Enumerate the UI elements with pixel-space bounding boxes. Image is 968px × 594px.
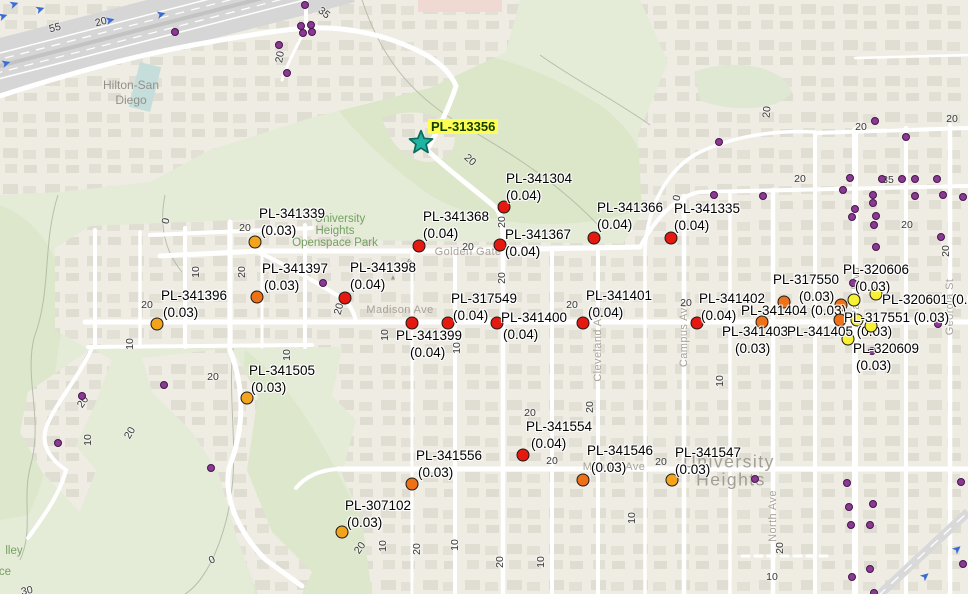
- monitoring-point-label-pl-341554: PL-341554(0.04): [526, 419, 592, 452]
- label-value: (0.04): [350, 277, 416, 294]
- traffic-direction-icon: ➤: [155, 7, 168, 21]
- monitoring-point-label-pl-341304: PL-341304(0.04): [506, 171, 572, 204]
- contour-label: 20: [940, 245, 952, 257]
- monitoring-point-dot-pl-341398[interactable]: [339, 292, 352, 305]
- monitoring-point-label-pl-341366: PL-341366(0.04): [597, 200, 663, 233]
- label-value: (0.04): [674, 218, 740, 235]
- well-point[interactable]: [847, 521, 855, 529]
- well-point[interactable]: [871, 117, 879, 125]
- well-point[interactable]: [902, 133, 910, 141]
- traffic-direction-icon: ➤: [7, 0, 20, 11]
- place-label: ce: [0, 566, 11, 578]
- contour-label: 20: [411, 543, 423, 555]
- contour-label: 10: [124, 338, 136, 350]
- monitoring-point-label-pl-341404: PL-341404 (0.03): [741, 303, 846, 320]
- contour-label: 20: [774, 542, 786, 554]
- contour-label: 20: [273, 50, 287, 64]
- label-value: (0.03): [591, 460, 653, 477]
- contour-label: 10: [190, 266, 202, 278]
- contour-label: 35: [316, 5, 333, 22]
- monitoring-point-label-pl-341403: PL-341403(0.03): [722, 324, 788, 357]
- street-label: Madison Ave: [366, 304, 433, 316]
- contour-label: 20: [239, 222, 251, 234]
- label-value: (0.04): [410, 345, 462, 362]
- contour-label: 10: [377, 540, 389, 552]
- well-point[interactable]: [851, 205, 859, 213]
- label-value: (0.03): [418, 465, 482, 482]
- monitoring-point-label-pl-317550: PL-317550(0.03): [773, 272, 839, 305]
- label-text: PL-320601 (0.03): [882, 292, 968, 309]
- label-id: PL-341304: [506, 171, 572, 188]
- well-point[interactable]: [878, 175, 886, 183]
- label-value: (0.04): [597, 217, 663, 234]
- label-value: (0.03): [264, 278, 328, 295]
- well-point[interactable]: [846, 174, 854, 182]
- label-value: (0.03): [675, 462, 741, 479]
- label-id: PL-317549: [451, 291, 517, 308]
- label-text: PL-341404 (0.03): [741, 303, 846, 320]
- monitoring-point-label-pl-341505: PL-341505(0.03): [249, 363, 315, 396]
- well-point[interactable]: [898, 175, 906, 183]
- label-value: (0.04): [531, 436, 592, 453]
- well-point[interactable]: [869, 500, 877, 508]
- label-id: PL-341554: [526, 419, 592, 436]
- well-point[interactable]: [959, 193, 967, 201]
- label-value: (0.04): [505, 244, 571, 261]
- label-id: PL-341335: [674, 201, 740, 218]
- well-point[interactable]: [171, 28, 179, 36]
- well-point[interactable]: [872, 212, 880, 220]
- contour-label: 0: [207, 553, 217, 566]
- label-id: PL-341366: [597, 200, 663, 217]
- contour-label: 20: [462, 152, 479, 169]
- contour-label: 20: [122, 425, 138, 441]
- monitoring-point-label-pl-320609: PL-320609(0.03): [853, 341, 919, 374]
- well-point[interactable]: [207, 464, 215, 472]
- well-point[interactable]: [870, 589, 878, 594]
- well-point[interactable]: [275, 41, 283, 49]
- contour-label: 10: [281, 349, 293, 361]
- monitoring-point-label-pl-341335: PL-341335(0.04): [674, 201, 740, 234]
- label-text: PL-317551 (0.03): [844, 310, 949, 327]
- label-value: (0.03): [163, 305, 227, 322]
- label-value: (0.03): [347, 515, 411, 532]
- well-point[interactable]: [870, 221, 878, 229]
- well-point[interactable]: [933, 175, 941, 183]
- label-id: PL-341403: [722, 324, 788, 341]
- site-star-label: PL-313356: [428, 119, 498, 134]
- contour-label: 20: [236, 266, 248, 278]
- well-point[interactable]: [78, 392, 86, 400]
- well-point[interactable]: [715, 138, 723, 146]
- monitoring-point-label-pl-341399: PL-341399(0.04): [396, 328, 462, 361]
- label-id: PL-341547: [675, 445, 741, 462]
- contour-label: 10: [82, 434, 94, 446]
- label-id: PL-320606: [843, 262, 909, 279]
- traffic-direction-icon: ➤: [104, 13, 117, 27]
- monitoring-point-dot-pl-341366[interactable]: [588, 232, 601, 245]
- contour-label: 20: [524, 407, 536, 419]
- street-label: North Ave: [767, 490, 779, 542]
- map-canvas[interactable]: Madison AveGolden Gate DrMonroe AveCleve…: [0, 0, 968, 594]
- well-point[interactable]: [866, 565, 874, 573]
- label-id: PL-341505: [249, 363, 315, 380]
- label-id: PL-341397: [262, 261, 328, 278]
- well-point[interactable]: [866, 521, 874, 529]
- monitoring-point-label-pl-341400: PL-341400(0.04): [501, 310, 567, 343]
- contour-label: 55: [48, 21, 62, 35]
- place-label: Hilton-San: [103, 78, 159, 92]
- contour-label: 20: [655, 456, 667, 468]
- contour-label: 30: [20, 584, 34, 594]
- label-id: PL-341367: [505, 227, 571, 244]
- well-point[interactable]: [759, 192, 767, 200]
- well-point[interactable]: [848, 573, 856, 581]
- contour-label: 20: [496, 272, 508, 284]
- monitoring-point-dot-pl-320601[interactable]: [848, 294, 861, 307]
- contour-label: 10: [449, 539, 461, 551]
- well-point[interactable]: [848, 213, 856, 221]
- well-point[interactable]: [839, 186, 847, 194]
- monitoring-point-label-pl-341367: PL-341367(0.04): [505, 227, 571, 260]
- contour-label: 0: [160, 217, 173, 225]
- label-id: PL-341396: [161, 288, 227, 305]
- well-point[interactable]: [911, 175, 919, 183]
- label-value: (0.03): [735, 341, 788, 358]
- label-value: (0.03): [261, 223, 325, 240]
- label-value: (0.03): [251, 380, 315, 397]
- monitoring-point-label-pl-341396: PL-341396(0.03): [161, 288, 227, 321]
- label-id: PL-341556: [416, 448, 482, 465]
- label-id: PL-307102: [345, 498, 411, 515]
- contour-label: 20: [207, 371, 219, 383]
- contour-label: 20: [494, 556, 506, 568]
- label-id: PL-341400: [501, 310, 567, 327]
- contour-label: 10: [379, 329, 391, 341]
- contour-label: 20: [946, 113, 958, 125]
- contour-label: 20: [794, 173, 806, 185]
- label-id: PL-341546: [587, 443, 653, 460]
- well-point[interactable]: [160, 381, 168, 389]
- well-point[interactable]: [869, 199, 877, 207]
- label-id: PL-341399: [396, 328, 462, 345]
- place-label: lley: [5, 545, 22, 557]
- label-id: PL-341398: [350, 260, 416, 277]
- contour-label: 10: [535, 556, 547, 568]
- monitoring-point-label-pl-341398: PL-341398(0.04): [350, 260, 416, 293]
- contour-label: 20: [352, 540, 369, 556]
- well-point[interactable]: [843, 479, 851, 487]
- traffic-direction-icon: ➤: [0, 56, 12, 70]
- contour-label: 20: [584, 401, 596, 413]
- well-point[interactable]: [845, 503, 853, 511]
- monitoring-point-label-pl-320606: PL-320606(0.03): [843, 262, 909, 295]
- label-id: PL-320609: [853, 341, 919, 358]
- monitoring-point-label-pl-341339: PL-341339(0.03): [259, 206, 325, 239]
- well-point[interactable]: [283, 69, 291, 77]
- traffic-direction-icon: ➤: [33, 2, 46, 17]
- contour-label: 20: [546, 455, 558, 467]
- monitoring-point-label-pl-307102: PL-307102(0.03): [345, 498, 411, 531]
- well-point[interactable]: [299, 29, 307, 37]
- well-point[interactable]: [939, 191, 947, 199]
- contour-label: 20: [566, 299, 578, 311]
- label-value: (0.04): [588, 305, 652, 322]
- monitoring-point-label-pl-341368: PL-341368(0.04): [423, 209, 489, 242]
- label-value: (0.04): [423, 226, 489, 243]
- well-point[interactable]: [872, 243, 880, 251]
- contour-label: 10: [714, 375, 726, 387]
- monitoring-point-label-pl-317551: PL-317551 (0.03): [844, 310, 949, 327]
- monitoring-point-label-pl-320601: PL-320601 (0.03): [882, 292, 968, 309]
- well-point[interactable]: [751, 475, 759, 483]
- label-id: PL-341339: [259, 206, 325, 223]
- monitoring-point-label-pl-341547: PL-341547(0.03): [675, 445, 741, 478]
- label-id: PL-341368: [423, 209, 489, 226]
- well-point[interactable]: [911, 192, 919, 200]
- traffic-direction-icon: ➤: [0, 9, 10, 24]
- well-point[interactable]: [710, 191, 718, 199]
- monitoring-point-label-pl-341397: PL-341397(0.03): [262, 261, 328, 294]
- label-value: (0.04): [506, 188, 572, 205]
- well-point[interactable]: [301, 1, 309, 9]
- contour-label: 20: [141, 299, 153, 311]
- well-point[interactable]: [54, 439, 62, 447]
- contour-label: 10: [766, 571, 778, 583]
- well-point[interactable]: [937, 233, 945, 241]
- traffic-direction-icon: ➤: [949, 541, 964, 557]
- contour-label: 10: [626, 512, 638, 524]
- contour-label: 20: [901, 219, 913, 231]
- well-point[interactable]: [308, 28, 316, 36]
- label-id: PL-317550: [773, 272, 839, 289]
- label-value: (0.04): [503, 327, 567, 344]
- contour-label: 20: [761, 106, 774, 119]
- monitoring-point-label-pl-341546: PL-341546(0.03): [587, 443, 653, 476]
- label-value: (0.03): [856, 358, 919, 375]
- monitoring-point-label-pl-341556: PL-341556(0.03): [416, 448, 482, 481]
- well-point[interactable]: [959, 560, 967, 568]
- contour-label: 20: [462, 241, 474, 253]
- contour-label: 20: [855, 121, 867, 133]
- well-point[interactable]: [957, 478, 965, 486]
- place-label: Diego: [115, 93, 146, 107]
- street-label: Campus Ave: [678, 301, 690, 367]
- contour-label: 20: [680, 297, 692, 309]
- label-id: PL-341401: [586, 288, 652, 305]
- traffic-direction-icon: ➤: [917, 568, 932, 584]
- well-point[interactable]: [869, 191, 877, 199]
- monitoring-point-label-pl-341401: PL-341401(0.04): [586, 288, 652, 321]
